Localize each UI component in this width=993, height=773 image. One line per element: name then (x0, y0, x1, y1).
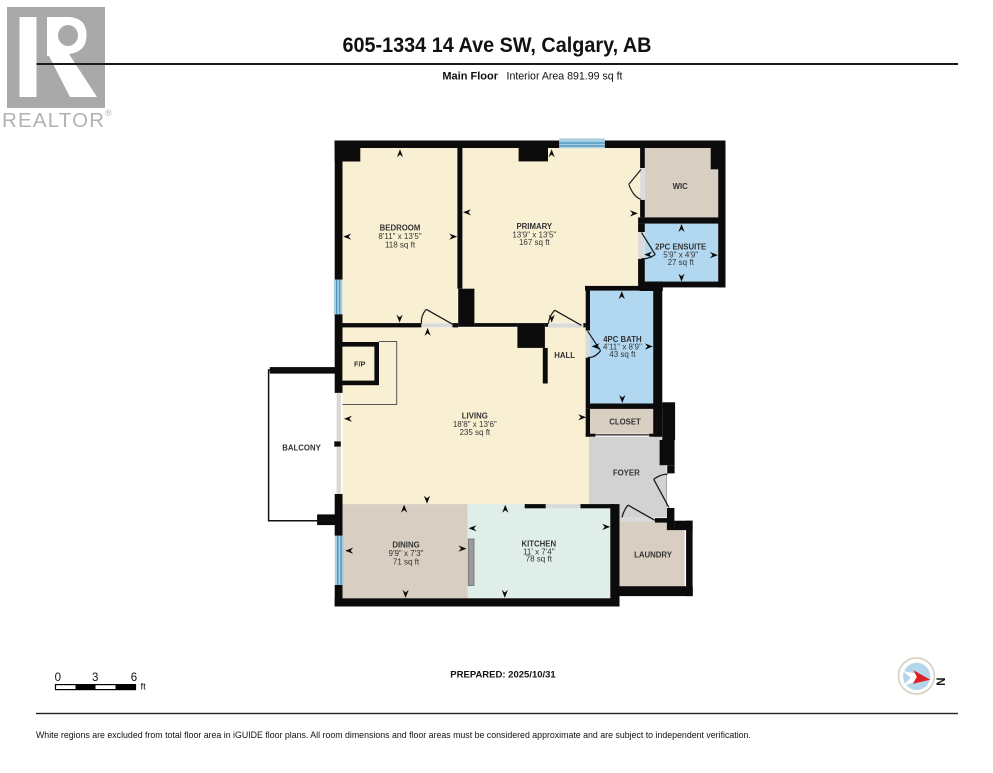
svg-text:71 sq ft: 71 sq ft (393, 558, 420, 567)
svg-text:6: 6 (131, 672, 137, 684)
svg-text:N: N (934, 678, 946, 686)
svg-text:HALL: HALL (554, 351, 575, 360)
svg-text:27 sq ft: 27 sq ft (668, 258, 695, 267)
svg-text:FOYER: FOYER (613, 469, 640, 478)
svg-text:3: 3 (92, 672, 98, 684)
svg-text:REALTOR: REALTOR (2, 109, 104, 132)
svg-text:®: ® (105, 108, 112, 118)
svg-text:78 sq ft: 78 sq ft (526, 555, 553, 564)
svg-text:235 sq ft: 235 sq ft (459, 428, 490, 437)
svg-text:White regions are excluded fro: White regions are excluded from total fl… (36, 730, 751, 740)
svg-text:CLOSET: CLOSET (609, 417, 641, 426)
svg-text:0: 0 (55, 672, 61, 684)
svg-text:ft: ft (141, 682, 147, 693)
svg-text:Main Floor: Main Floor (442, 71, 498, 83)
svg-text:43 sq ft: 43 sq ft (609, 350, 636, 359)
svg-text:605-1334 14 Ave SW, Calgary, A: 605-1334 14 Ave SW, Calgary, AB (343, 34, 652, 57)
svg-text:LAUNDRY: LAUNDRY (634, 551, 673, 560)
svg-text:F/P: F/P (354, 360, 366, 369)
svg-text:167 sq ft: 167 sq ft (519, 238, 550, 247)
svg-text:DINING: DINING (392, 540, 419, 549)
svg-text:WIC: WIC (673, 182, 689, 191)
svg-text:Interior Area 891.99 sq ft: Interior Area 891.99 sq ft (507, 71, 623, 83)
svg-text:118 sq ft: 118 sq ft (385, 241, 416, 250)
svg-text:BALCONY: BALCONY (282, 444, 321, 453)
svg-text:PREPARED: 2025/10/31: PREPARED: 2025/10/31 (450, 670, 556, 681)
